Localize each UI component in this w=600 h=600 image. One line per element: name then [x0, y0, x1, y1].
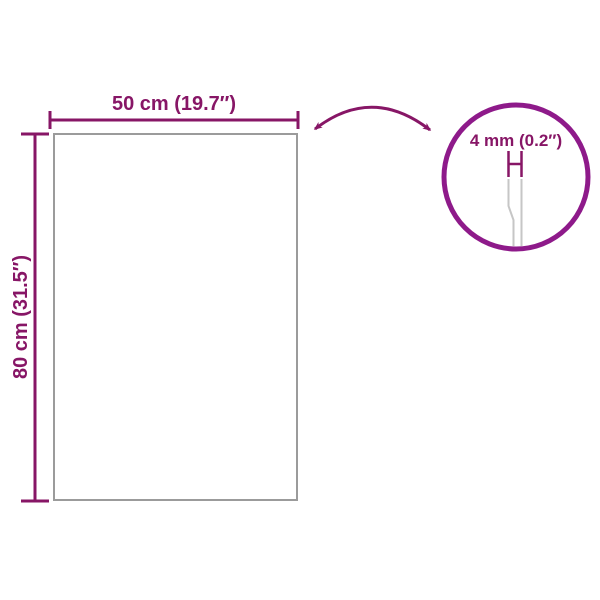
width-label: 50 cm (19.7″) — [112, 93, 236, 115]
zoom-detail: 4 mm (0.2″) — [444, 105, 588, 249]
dimension-diagram: 50 cm (19.7″) 80 cm (31.5″) 4 mm (0.2″) — [0, 0, 600, 600]
zoom-circle — [444, 105, 588, 249]
width-dimension: 50 cm (19.7″) — [50, 93, 298, 129]
product-outline — [54, 134, 297, 500]
height-label: 80 cm (31.5″) — [10, 255, 32, 379]
thickness-label: 4 mm (0.2″) — [470, 131, 562, 150]
dimension-diagram-svg: 50 cm (19.7″) 80 cm (31.5″) 4 mm (0.2″) — [0, 0, 600, 600]
height-dimension: 80 cm (31.5″) — [10, 134, 49, 501]
zoom-arrow-icon — [315, 107, 430, 130]
